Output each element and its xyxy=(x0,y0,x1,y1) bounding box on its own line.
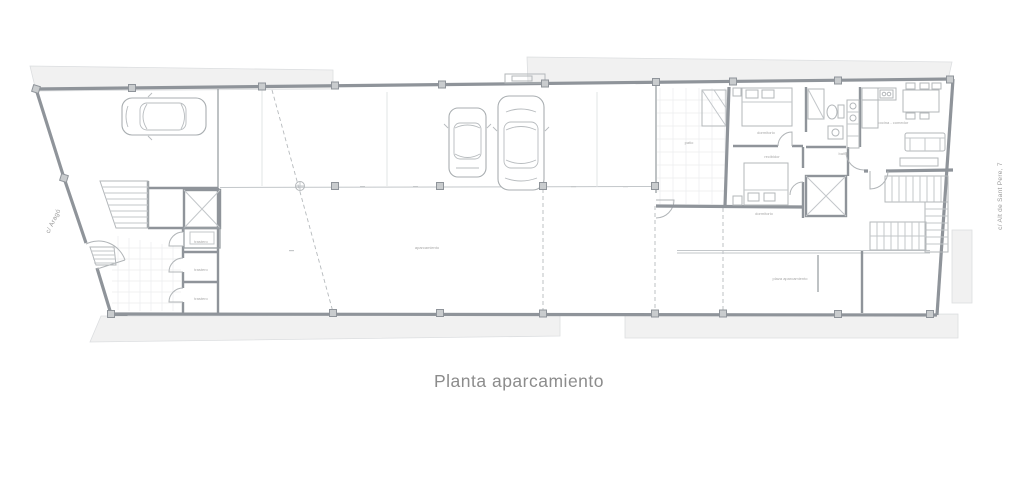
drawing-canvas: aparcamiento plaza aparcamiento trastero… xyxy=(0,0,1024,485)
sofa xyxy=(905,133,945,151)
label-hall: recibidor xyxy=(764,154,780,159)
label-bedroom-2: dormitorio xyxy=(755,211,774,216)
apartment-lower-wall xyxy=(656,206,803,207)
dining-table xyxy=(903,83,941,119)
plaza-door-arc xyxy=(656,200,674,218)
facade-left-wall xyxy=(36,89,111,314)
car-center-small xyxy=(444,108,491,177)
patio-floor-grid xyxy=(657,88,727,204)
car-top-left xyxy=(122,93,206,140)
sidewalk-right-patch xyxy=(952,230,972,303)
bed-2 xyxy=(733,163,788,205)
floor-plan: aparcamiento plaza aparcamiento trastero… xyxy=(0,0,1024,485)
label-parking: aparcamiento xyxy=(415,245,440,250)
label-kitchen-living: cocina - comedor xyxy=(878,120,909,125)
car-center-sedan xyxy=(493,96,549,190)
sidewalk-bottom-right xyxy=(625,314,958,338)
bathroom-fixtures xyxy=(808,89,844,139)
label-bathroom: baño xyxy=(839,151,849,156)
axis-dashed-1 xyxy=(272,90,333,312)
cars xyxy=(122,93,549,190)
facade-bottom-wall xyxy=(111,314,937,315)
apartment xyxy=(656,83,953,252)
plan-title: Planta aparcamiento xyxy=(434,371,604,391)
label-storage-1: trastero xyxy=(194,239,208,244)
label-storage-3: trastero xyxy=(194,296,208,301)
facade-right-wall xyxy=(937,79,953,315)
living-lower-wall xyxy=(864,170,953,171)
sidewalk-bottom-left xyxy=(90,315,560,342)
label-bedroom-1: dormitorio xyxy=(757,130,776,135)
stairs-right xyxy=(870,176,948,252)
street-label-right: c/ Alt de Sant Pere, 7 xyxy=(997,162,1004,230)
kitchen-counter xyxy=(847,88,896,148)
label-patio: patio xyxy=(685,140,694,145)
vestibule-floor-grid xyxy=(112,236,181,311)
tv-cabinet xyxy=(900,158,938,166)
label-storage-2: trastero xyxy=(194,267,208,272)
street-label-left: c/ Aragó xyxy=(45,208,63,235)
label-parking-space: plaza aparcamiento xyxy=(773,276,809,281)
stairs-left xyxy=(90,181,148,265)
bed-1 xyxy=(733,88,792,126)
